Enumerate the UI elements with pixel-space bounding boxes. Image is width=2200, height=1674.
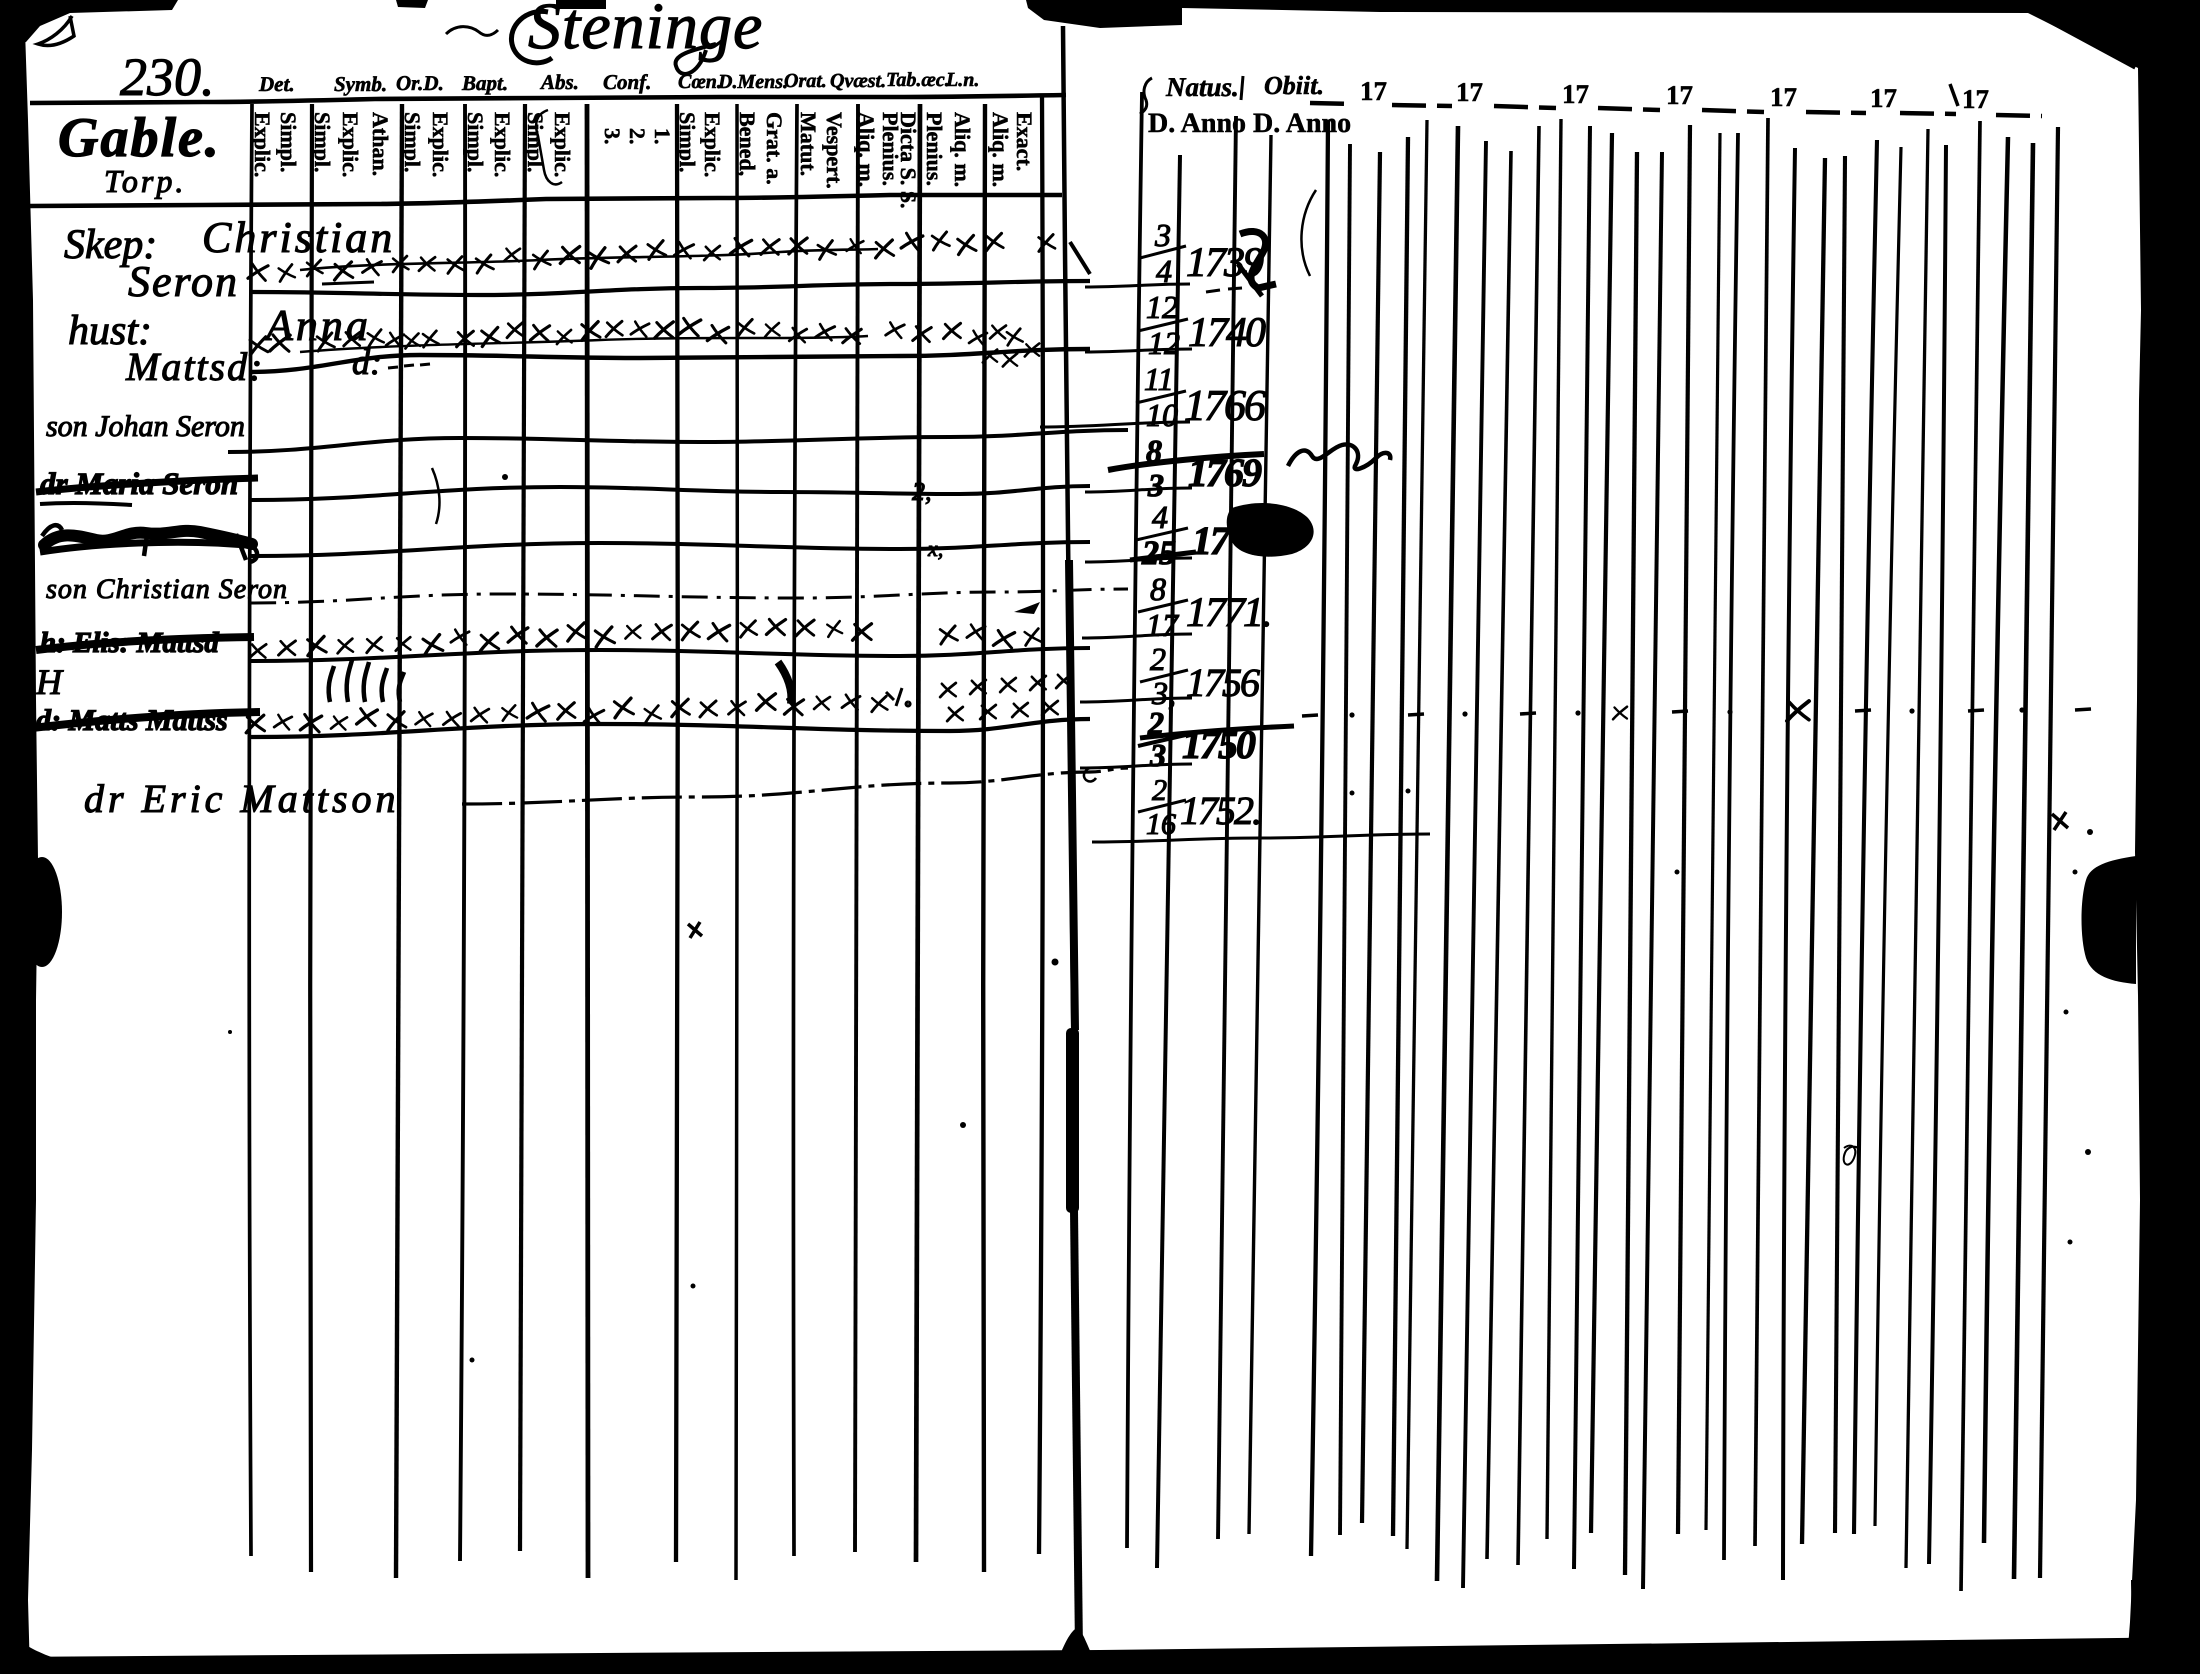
svg-text:Mattsd:: Mattsd: — [125, 344, 264, 389]
svg-text:Aliq. m.: Aliq. m. — [988, 112, 1013, 187]
svg-text:x,: x, — [927, 536, 943, 561]
svg-text:17: 17 — [1192, 518, 1232, 563]
svg-text:12: 12 — [1146, 289, 1178, 325]
svg-text:Bapt.: Bapt. — [461, 71, 508, 95]
svg-text:Simpl.: Simpl. — [400, 112, 425, 173]
svg-text:Matut.: Matut. — [796, 112, 821, 176]
svg-text:Orat.: Orat. — [784, 70, 827, 92]
svg-text:4: 4 — [1152, 499, 1168, 535]
svg-text:Steninge: Steninge — [528, 0, 763, 63]
svg-text:1.: 1. — [650, 128, 675, 145]
svg-text:Explic.: Explic. — [250, 112, 275, 177]
svg-text:Simpl.: Simpl. — [675, 112, 700, 173]
svg-text:1756: 1756 — [1186, 660, 1260, 705]
svg-text:L.n.: L.n. — [945, 69, 979, 91]
svg-text:16: 16 — [1146, 808, 1176, 841]
svg-text:Gable.: Gable. — [58, 107, 221, 169]
svg-text:Explic.: Explic. — [700, 112, 725, 177]
svg-text:Plenius.: Plenius. — [922, 112, 947, 186]
svg-text:Symb.: Symb. — [334, 72, 387, 96]
svg-text:2,: 2, — [912, 477, 932, 506]
svg-text:3: 3 — [1147, 467, 1164, 503]
svg-text:Simpl.: Simpl. — [276, 112, 301, 173]
svg-text:17: 17 — [1562, 79, 1589, 109]
svg-text:Aliq. m.: Aliq. m. — [950, 112, 975, 187]
svg-text:Aliq. m.: Aliq. m. — [854, 112, 879, 187]
svg-text:Conf.: Conf. — [603, 70, 651, 94]
svg-text:17: 17 — [1146, 607, 1180, 643]
svg-text:8: 8 — [1150, 571, 1166, 607]
svg-text:17: 17 — [1666, 80, 1693, 110]
svg-text:17: 17 — [1456, 77, 1483, 107]
svg-text:2.: 2. — [625, 128, 650, 145]
svg-text:17: 17 — [1770, 82, 1797, 112]
svg-text:3.: 3. — [600, 128, 625, 145]
svg-text:Explic.: Explic. — [428, 112, 453, 177]
svg-text:17: 17 — [1962, 84, 1989, 114]
svg-text:3: 3 — [1154, 217, 1171, 253]
svg-text:Grat. a.: Grat. a. — [762, 112, 787, 185]
svg-text:Seron: Seron — [128, 257, 239, 306]
svg-text:Athan.: Athan. — [368, 112, 393, 176]
svg-text:Explic.: Explic. — [550, 112, 575, 177]
svg-text:230.: 230. — [120, 47, 215, 107]
svg-text:Explic.: Explic. — [490, 112, 515, 177]
svg-text:10: 10 — [1146, 397, 1178, 433]
svg-text:11: 11 — [1144, 361, 1174, 397]
svg-text:Det.: Det. — [258, 72, 295, 96]
svg-text:son Christian Seron: son Christian Seron — [46, 574, 288, 605]
svg-text:Natus.: Natus. — [1165, 72, 1239, 102]
svg-text:Qvæst.: Qvæst. — [830, 70, 886, 92]
svg-text:D.Mens.: D.Mens. — [717, 71, 788, 93]
svg-text:Dicta S. S.: Dicta S. S. — [896, 112, 921, 209]
svg-text:Torp.: Torp. — [104, 163, 186, 199]
svg-text:Simpl.: Simpl. — [310, 112, 335, 173]
svg-text:Or.D.: Or.D. — [396, 71, 444, 95]
svg-text:1766: 1766 — [1184, 381, 1266, 430]
svg-text:son Johan Seron: son Johan Seron — [46, 410, 245, 443]
svg-text:2: 2 — [1150, 641, 1166, 677]
svg-text:Explic.: Explic. — [338, 112, 363, 177]
svg-text:Vespert.: Vespert. — [822, 112, 847, 189]
svg-text:H: H — [35, 662, 64, 702]
svg-text:D. Anno D. Anno: D. Anno D. Anno — [1148, 108, 1351, 139]
svg-text:1740: 1740 — [1188, 310, 1266, 356]
svg-text:2: 2 — [1152, 774, 1167, 807]
svg-text:Exact.: Exact. — [1012, 112, 1037, 171]
svg-text:Bened,: Bened, — [735, 112, 760, 176]
svg-text:1752.: 1752. — [1180, 788, 1260, 833]
svg-text:Cœn.: Cœn. — [678, 71, 722, 93]
svg-text:Tab.æc.: Tab.æc. — [886, 69, 950, 91]
svg-text:Simpl.: Simpl. — [463, 112, 488, 173]
svg-text:17: 17 — [1870, 83, 1897, 113]
svg-text:1771.: 1771. — [1186, 590, 1271, 636]
svg-text:12: 12 — [1148, 325, 1180, 361]
svg-text:Christian: Christian — [202, 213, 395, 262]
svg-text:Abs.: Abs. — [539, 70, 579, 94]
svg-text:dr Eric Mattson: dr Eric Mattson — [84, 776, 400, 821]
svg-text:Obiit.: Obiit. — [1264, 71, 1324, 100]
svg-text:17: 17 — [1360, 76, 1387, 106]
